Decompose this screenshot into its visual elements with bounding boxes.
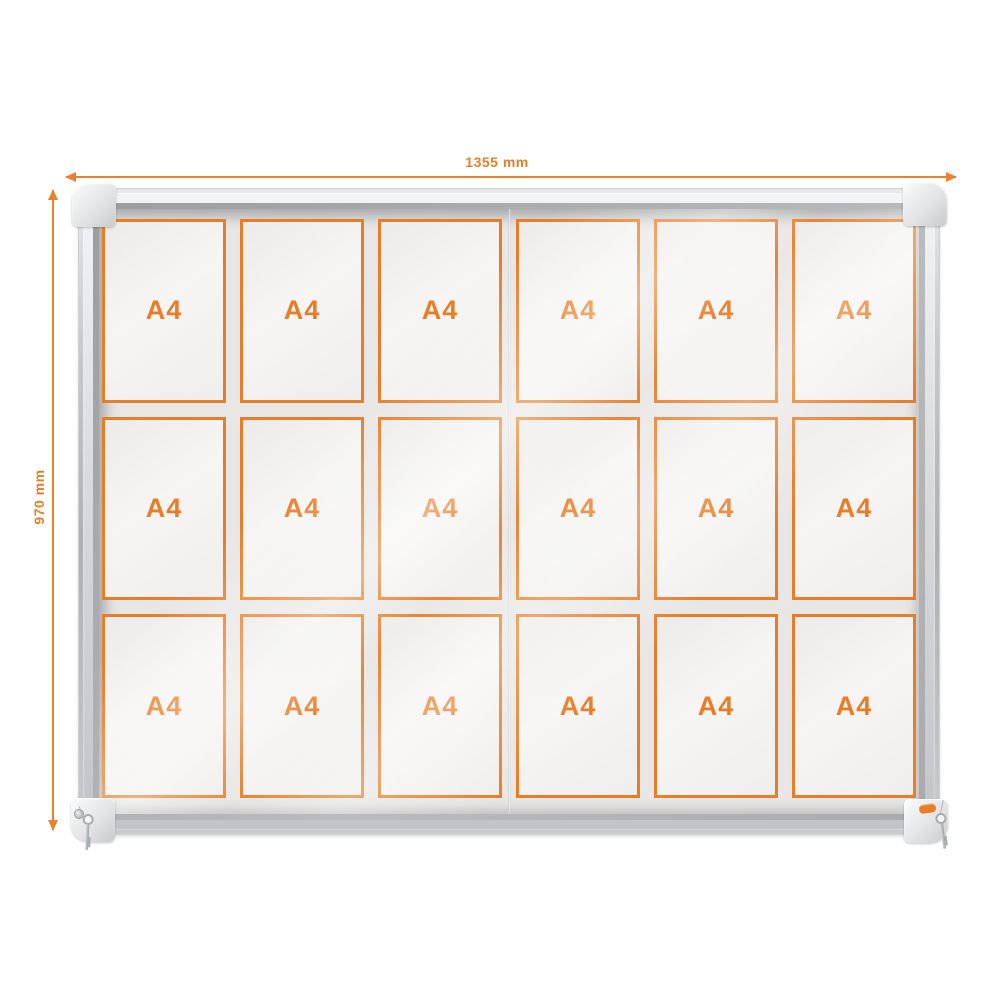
sliding-door-seam: [508, 209, 511, 814]
a4-sheet: A4: [378, 417, 502, 601]
a4-sheet-label: A4: [560, 295, 597, 326]
a4-sheet-label: A4: [836, 691, 873, 722]
a4-sheet-label: A4: [146, 493, 183, 524]
a4-sheet-label: A4: [698, 295, 735, 326]
display-case: A4A4A4A4A4A4A4A4A4A4A4A4A4A4A4A4A4A4: [78, 188, 940, 835]
a4-sheet: A4: [654, 219, 778, 403]
a4-sheet: A4: [102, 219, 226, 403]
a4-sheet: A4: [102, 417, 226, 601]
a4-sheet-label: A4: [146, 295, 183, 326]
height-dimension-arrow: [52, 190, 54, 830]
a4-sheet-label: A4: [284, 691, 321, 722]
a4-sheet-label: A4: [422, 493, 459, 524]
height-dimension-label: 970 mm: [31, 447, 51, 547]
a4-sheet-label: A4: [422, 295, 459, 326]
width-dimension-label: 1355 mm: [437, 154, 557, 170]
a4-sheet-label: A4: [836, 295, 873, 326]
key-icon: [81, 814, 93, 850]
a4-sheet-label: A4: [422, 691, 459, 722]
a4-sheet-label: A4: [284, 493, 321, 524]
a4-sheet: A4: [378, 614, 502, 798]
a4-sheet: A4: [654, 614, 778, 798]
key-blade: [940, 823, 946, 849]
a4-sheet-label: A4: [698, 493, 735, 524]
notice-board: A4A4A4A4A4A4A4A4A4A4A4A4A4A4A4A4A4A4: [99, 209, 919, 814]
a4-sheet: A4: [516, 219, 640, 403]
corner-cap-top-left: [72, 183, 116, 227]
corner-cap-top-right: [903, 182, 947, 226]
a4-sheet: A4: [654, 417, 778, 601]
a4-sheet-label: A4: [560, 691, 597, 722]
a4-sheet-label: A4: [836, 493, 873, 524]
product-image: 1355 mm 970 mm A4A4A4A4A4A4A4A4A4A4A4A4A…: [0, 0, 1000, 1000]
a4-sheet: A4: [378, 219, 502, 403]
width-dimension-arrow: [66, 176, 956, 178]
a4-sheet-label: A4: [698, 691, 735, 722]
a4-sheet-label: A4: [284, 295, 321, 326]
a4-sheet: A4: [792, 614, 916, 798]
a4-sheet-label: A4: [560, 493, 597, 524]
a4-sheet: A4: [792, 219, 916, 403]
key-blade: [85, 824, 89, 850]
a4-sheet: A4: [102, 614, 226, 798]
a4-sheet: A4: [240, 614, 364, 798]
a4-sheet-label: A4: [146, 691, 183, 722]
a4-sheet: A4: [792, 417, 916, 601]
a4-sheet: A4: [516, 614, 640, 798]
a4-sheet: A4: [516, 417, 640, 601]
a4-sheet: A4: [240, 219, 364, 403]
a4-sheet: A4: [240, 417, 364, 601]
